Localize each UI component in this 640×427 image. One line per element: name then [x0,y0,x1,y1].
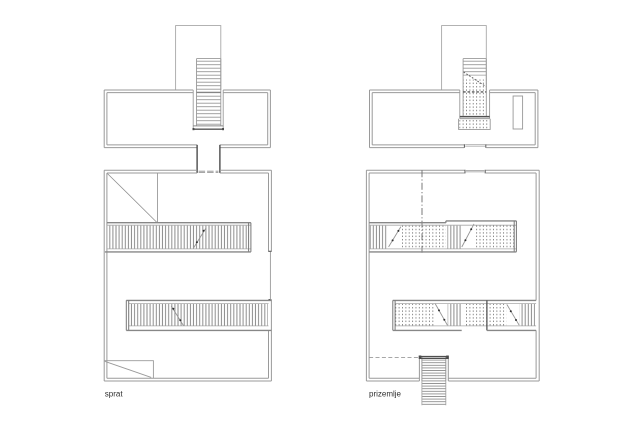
svg-text:sprat: sprat [105,389,124,398]
svg-text:prizemlje: prizemlje [369,389,402,398]
